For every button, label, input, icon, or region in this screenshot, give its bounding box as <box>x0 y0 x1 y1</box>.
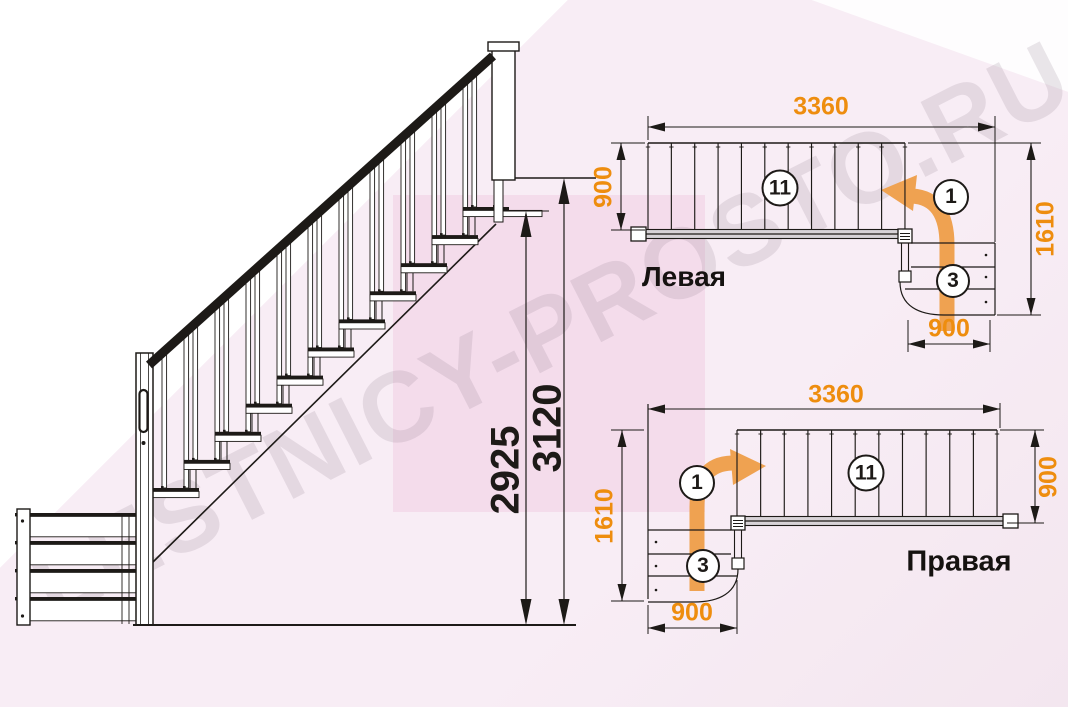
left-plan-first-step-badge: 1 <box>933 179 969 215</box>
right-plan-turn-steps-badge: 3 <box>686 549 720 583</box>
right-plan-turn-steps-count: 3 <box>697 554 709 578</box>
right-plan-straight-steps-count: 11 <box>855 461 877 485</box>
stair-drawing-page: LESTNICY-PROSTO.RU 2925 3120 3360 900 16… <box>0 0 1068 707</box>
plan-view-left-version <box>611 116 1041 352</box>
left-plan-label: Левая <box>642 261 726 293</box>
right-plan-dimension-length: 3360 <box>808 381 864 410</box>
left-plan-turn-steps-count: 3 <box>947 269 959 293</box>
right-plan-dimension-total-depth: 1610 <box>591 488 620 544</box>
right-plan-first-step-number: 1 <box>691 471 703 495</box>
left-plan-first-step-number: 1 <box>945 185 957 209</box>
right-plan-label: Правая <box>906 546 1011 579</box>
left-plan-straight-steps-count: 11 <box>769 176 791 200</box>
left-plan-turn-steps-badge: 3 <box>936 264 970 298</box>
right-plan-straight-steps-badge: 11 <box>848 455 885 492</box>
left-plan-straight-steps-badge: 11 <box>762 170 799 207</box>
dimension-height-to-floor: 3120 <box>526 384 571 473</box>
right-plan-dimension-flight-width: 900 <box>1035 456 1064 498</box>
left-plan-dimension-flight-width: 900 <box>590 166 619 208</box>
staircase-side-elevation <box>15 42 596 625</box>
left-plan-dimension-total-depth: 1610 <box>1032 201 1061 257</box>
left-plan-dimension-length: 3360 <box>793 93 849 122</box>
technical-drawing-canvas <box>0 0 1068 707</box>
right-plan-dimension-turn-width: 900 <box>671 599 713 628</box>
right-plan-first-step-badge: 1 <box>679 465 715 501</box>
left-plan-dimension-turn-width: 900 <box>928 315 970 344</box>
dimension-height-to-top-step: 2925 <box>484 426 529 515</box>
